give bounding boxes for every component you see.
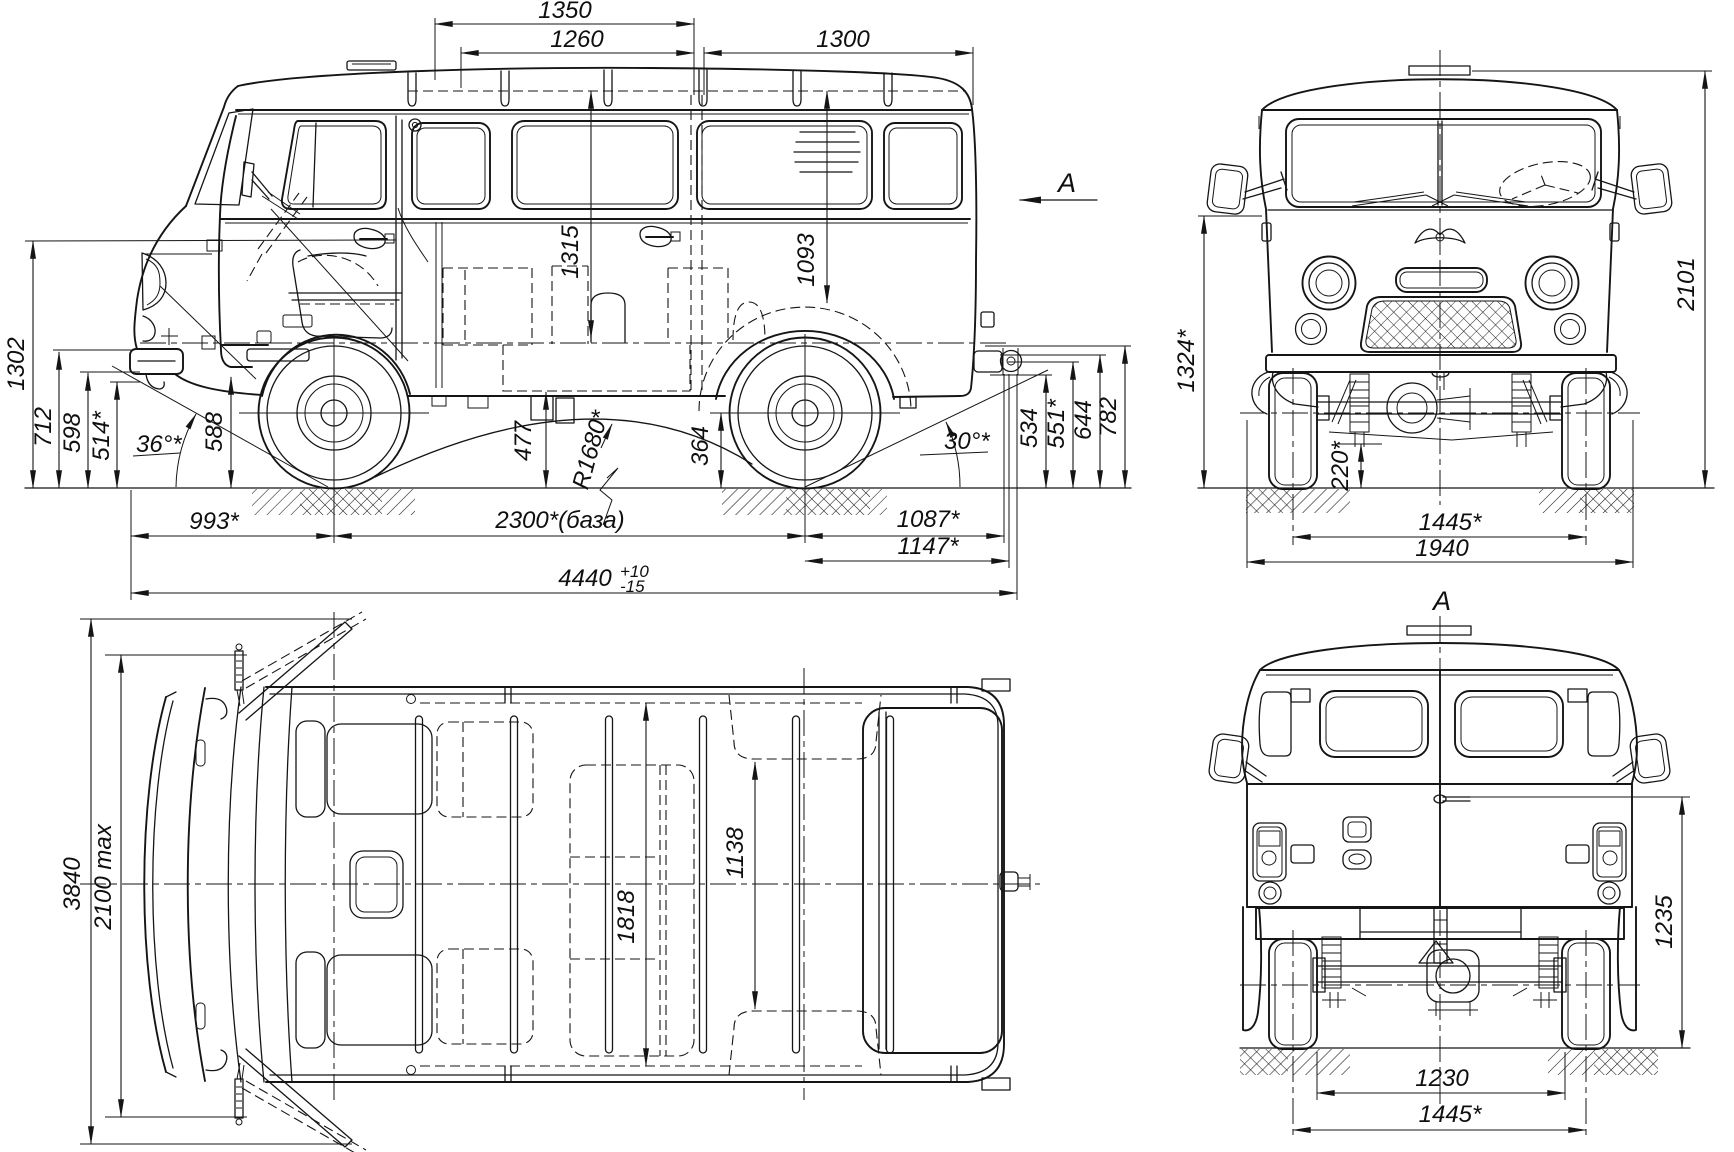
svg-text:364: 364 [687,426,714,466]
svg-text:1940: 1940 [1415,535,1469,562]
svg-text:477: 477 [510,419,537,461]
svg-text:220*: 220* [1327,441,1354,492]
svg-text:1445*: 1445* [1419,1101,1482,1128]
svg-text:534: 534 [1016,408,1043,448]
svg-text:598: 598 [59,412,86,453]
svg-text:993*: 993* [189,508,239,535]
svg-text:712: 712 [30,407,57,447]
svg-text:2300*(база): 2300*(база) [494,507,624,534]
svg-text:644: 644 [1070,400,1097,440]
svg-text:A: A [1056,168,1076,198]
svg-text:1230: 1230 [1415,1065,1469,1092]
svg-text:4440: 4440 [558,565,612,592]
svg-text:A: A [1431,586,1451,616]
svg-text:1087*: 1087* [897,506,960,533]
svg-text:1260: 1260 [550,26,604,53]
svg-text:1093: 1093 [793,233,820,287]
svg-text:551*: 551* [1043,399,1070,449]
svg-text:30°*: 30°* [944,428,990,455]
svg-text:2101: 2101 [1673,257,1700,311]
svg-text:-15: -15 [620,577,645,596]
svg-text:1350: 1350 [538,0,592,24]
svg-text:1818: 1818 [613,890,640,944]
svg-text:1147*: 1147* [898,533,960,560]
svg-text:1315: 1315 [557,225,584,279]
svg-text:1324*: 1324* [1173,329,1200,392]
svg-text:1302: 1302 [3,337,30,390]
svg-text:1138: 1138 [722,827,749,879]
svg-text:2100 max: 2100 max [90,823,117,930]
svg-text:514*: 514* [88,411,115,461]
svg-text:3840: 3840 [59,857,86,911]
svg-text:588: 588 [201,411,228,452]
svg-text:782: 782 [1095,397,1122,437]
svg-text:1300: 1300 [816,26,870,53]
svg-text:1445*: 1445* [1419,509,1482,536]
svg-text:1235: 1235 [1651,895,1678,949]
